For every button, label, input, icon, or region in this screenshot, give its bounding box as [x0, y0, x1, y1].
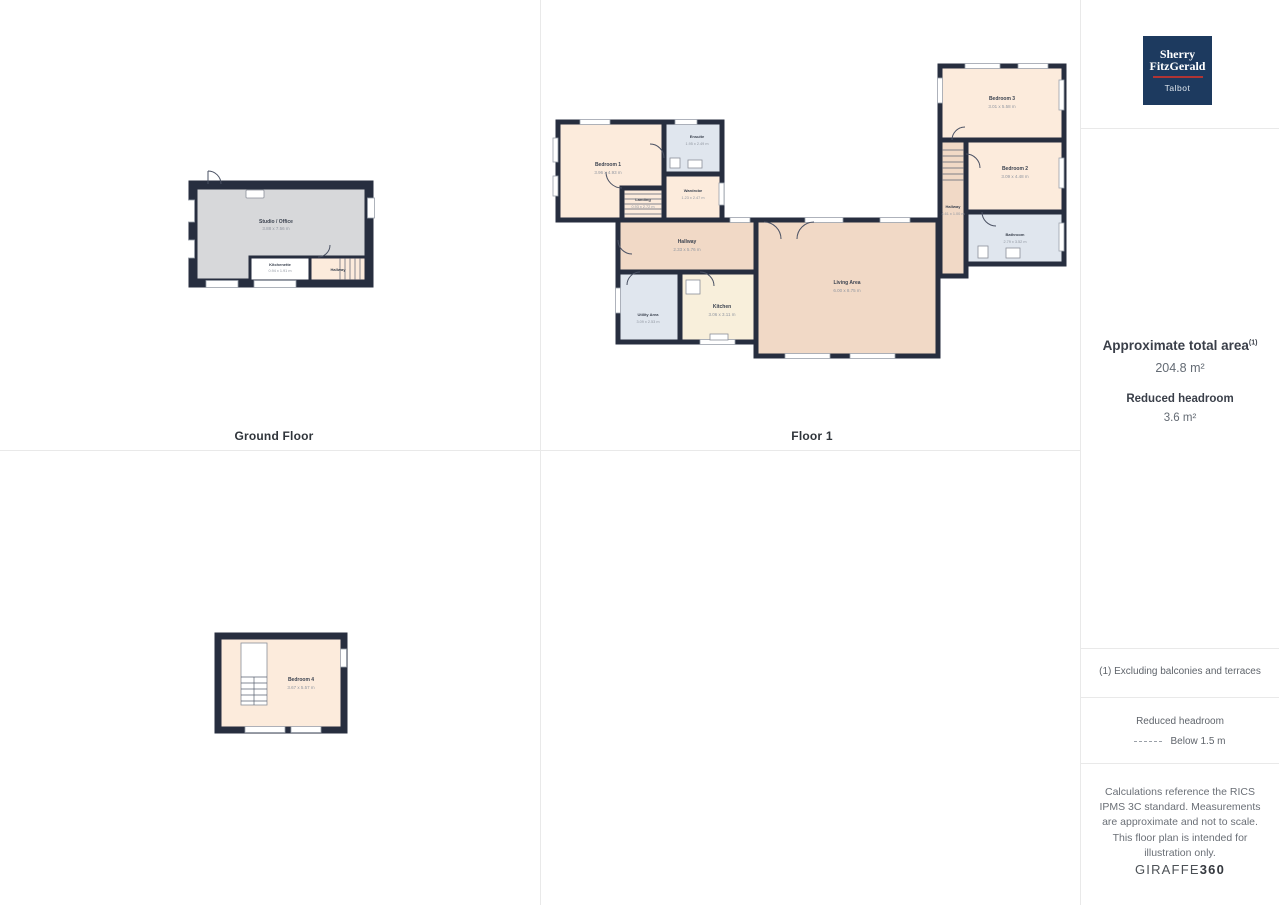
disclaimer-text: Calculations reference the RICS IPMS 3C … — [1094, 785, 1266, 861]
brand-bold: 360 — [1200, 862, 1225, 877]
ensuite-label: Ensuite — [690, 134, 705, 139]
sidebar-divider-4 — [1081, 763, 1279, 764]
wardrobe-dims: 1.23 x 2.47 m — [681, 196, 704, 200]
bedroom4-dims: 3.67 x 5.57 m — [287, 685, 315, 690]
bedroom4-room — [221, 639, 341, 727]
ground-floor-caption: Ground Floor — [199, 429, 349, 443]
area-footnote: (1) Excluding balconies and terraces — [1080, 666, 1280, 677]
hallway-room — [618, 220, 756, 272]
bedroom2-label: Bedroom 2 — [1002, 166, 1028, 172]
bedroom1-label: Bedroom 1 — [595, 162, 621, 168]
ensuite-dims: 1.95 x 2.49 m — [685, 142, 708, 146]
utility-dims: 3.09 x 2.53 m — [636, 320, 659, 324]
legend-label: Below 1.5 m — [1170, 736, 1225, 747]
hallway-dims: 2.33 x 5.76 m — [673, 247, 701, 252]
floor2-stairs — [241, 643, 267, 705]
sidebar-divider-3 — [1081, 697, 1279, 698]
floor2-plan: Bedroom 4 3.67 x 5.57 m — [213, 631, 349, 735]
reduced-headroom-title: Reduced headroom — [1080, 393, 1280, 405]
total-area-footnote-marker: (1) — [1249, 340, 1258, 347]
wardrobe-label: Wardrobe — [684, 188, 703, 193]
hallway-label: Hallway — [678, 239, 697, 245]
studio-office-label: Studio / Office — [259, 219, 293, 225]
utility-label: Utility Area — [638, 312, 660, 317]
legend-row: Below 1.5 m — [1080, 736, 1280, 747]
hallway2-dims: 4.61 x 1.00 m — [941, 212, 964, 216]
total-area-title: Approximate total area(1) — [1080, 338, 1280, 353]
dashed-line-swatch — [1134, 741, 1162, 742]
ground-hallway-label: Hallway — [331, 267, 347, 272]
radiator-fixture — [246, 190, 264, 198]
brand-regular: GIRAFFE — [1135, 862, 1200, 877]
bedroom1-dims: 3.96 x 4.93 m — [594, 170, 622, 175]
kitchenette-label: Kitchenette — [269, 262, 292, 267]
bedroom4-label: Bedroom 4 — [288, 677, 314, 683]
agency-logo-line2: FitzGerald — [1150, 60, 1206, 73]
agency-logo: Sherry FitzGerald Talbot — [1143, 36, 1212, 105]
agency-logo-rule — [1153, 76, 1203, 78]
living-dims: 6.00 x 8.75 m — [833, 288, 861, 293]
floor1-rooms — [558, 66, 1064, 356]
bedroom2-dims: 3.09 x 4.48 m — [1001, 174, 1029, 179]
floorplan-page: Studio / Office 3.88 x 7.56 m Kitchenett… — [0, 0, 1280, 905]
sidebar-divider-1 — [1081, 128, 1279, 129]
studio-office-dims: 3.88 x 7.56 m — [262, 226, 290, 231]
landing-label: Landing — [635, 197, 651, 202]
living-label: Living Area — [833, 280, 860, 286]
hallway2-label: Hallway — [946, 204, 962, 209]
area-summary: Approximate total area(1) 204.8 m² Reduc… — [1080, 338, 1280, 424]
landing-dims: 0.93 x 2.72 m — [631, 205, 654, 209]
kitchen-dims: 3.06 x 3.11 m — [709, 312, 736, 317]
kitchen-label: Kitchen — [713, 304, 731, 310]
bedroom3-label: Bedroom 3 — [989, 96, 1015, 102]
kitchenette-dims: 0.94 x 1.91 m — [268, 269, 291, 273]
bathroom-label: Bathroom — [1006, 232, 1025, 237]
ground-floor-plan: Studio / Office 3.88 x 7.56 m Kitchenett… — [188, 170, 376, 295]
sidebar-divider-2 — [1081, 648, 1279, 649]
grid-divider-horizontal — [0, 450, 1080, 451]
floor1-caption: Floor 1 — [737, 429, 887, 443]
agency-logo-line3: Talbot — [1165, 83, 1191, 93]
grid-divider-vertical-2 — [1080, 0, 1081, 905]
giraffe360-brand: GIRAFFE360 — [1080, 862, 1280, 877]
reduced-headroom-value: 3.6 m² — [1080, 412, 1280, 424]
legend-title: Reduced headroom — [1080, 716, 1280, 727]
floor1-plan: Bedroom 1 3.96 x 4.93 m Ensuite 1.95 x 2… — [550, 58, 1074, 364]
bathroom-dims: 2.79 x 3.52 m — [1003, 240, 1026, 244]
total-area-title-text: Approximate total area — [1103, 338, 1249, 353]
bedroom3-dims: 3.01 x 5.58 m — [988, 104, 1016, 109]
grid-divider-vertical-1 — [540, 0, 541, 905]
total-area-value: 204.8 m² — [1080, 361, 1280, 375]
